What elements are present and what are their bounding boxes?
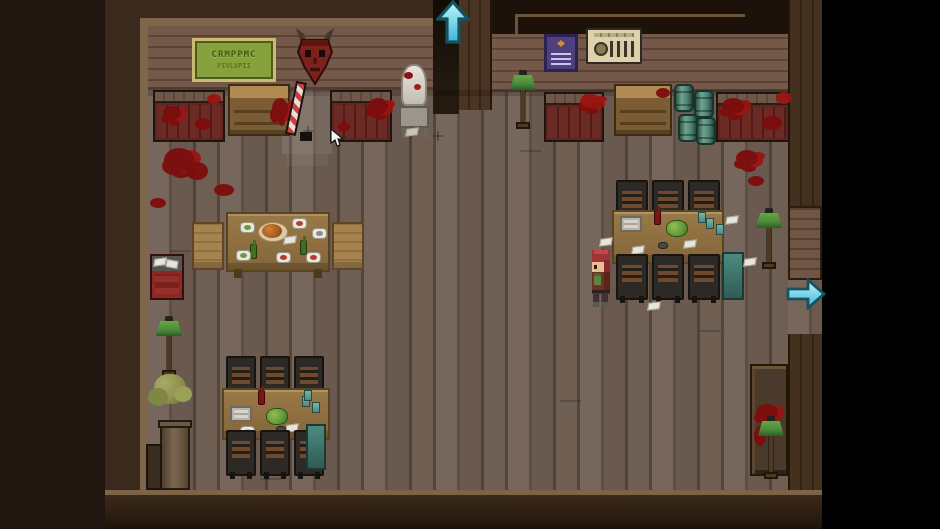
plant-pot bbox=[160, 426, 190, 490]
poster-text-rows bbox=[551, 50, 571, 65]
lamp-base bbox=[764, 472, 778, 479]
metal-tray bbox=[230, 406, 252, 422]
blood-stain bbox=[186, 162, 208, 180]
blood-stain bbox=[404, 72, 413, 79]
dark-chair bbox=[688, 254, 720, 300]
sign-text-line1: CRMPPMC bbox=[212, 50, 257, 60]
chair-slats bbox=[300, 367, 318, 384]
dark-chair bbox=[616, 254, 648, 300]
lamp-shade bbox=[756, 213, 782, 228]
blood-stain bbox=[580, 94, 600, 108]
wall-cabinet bbox=[614, 84, 672, 136]
sign-text-line2: PIVLVPII bbox=[217, 62, 251, 70]
bloody-bench bbox=[544, 92, 604, 142]
lamp-pole bbox=[767, 228, 771, 262]
cabbage bbox=[266, 408, 288, 425]
plate bbox=[312, 228, 327, 239]
dark-chair bbox=[226, 430, 256, 476]
table-leg bbox=[314, 269, 322, 278]
teal-cup bbox=[698, 212, 706, 223]
wine-bottle bbox=[250, 244, 257, 259]
teal-cup bbox=[716, 224, 724, 235]
panel-buttons bbox=[594, 33, 634, 37]
paper-scrap bbox=[683, 239, 697, 249]
teal-barrel bbox=[694, 90, 714, 118]
metal-tray bbox=[620, 216, 642, 232]
blood-stain bbox=[368, 98, 388, 114]
plank-joint bbox=[560, 400, 581, 402]
blood-stain bbox=[722, 98, 744, 114]
blood-stain bbox=[776, 92, 792, 104]
teal-barrel bbox=[674, 84, 694, 112]
blood-stain bbox=[163, 106, 181, 120]
floor-lamp bbox=[756, 208, 782, 269]
teal-cup bbox=[304, 390, 312, 401]
blood-stain bbox=[762, 116, 782, 130]
panel-slots bbox=[610, 41, 634, 57]
chair-slats bbox=[658, 265, 678, 282]
lamp-shade bbox=[510, 75, 536, 90]
lamp-base bbox=[516, 122, 530, 129]
bloody-bench bbox=[153, 90, 225, 142]
dark-chair bbox=[260, 430, 290, 476]
staff-tip bbox=[300, 132, 312, 141]
bloody-bench bbox=[716, 92, 790, 142]
dark-chair bbox=[652, 254, 684, 300]
plant-foliage bbox=[174, 386, 192, 402]
blood-stain bbox=[195, 118, 211, 130]
cabbage bbox=[666, 220, 688, 237]
chair-legs bbox=[230, 472, 252, 479]
letterbox-left bbox=[0, 0, 105, 529]
red-bottle bbox=[654, 210, 661, 225]
dining-table bbox=[226, 212, 330, 272]
floor-lamp bbox=[758, 416, 784, 479]
chair-slats bbox=[266, 441, 284, 458]
blood-stain bbox=[748, 176, 764, 186]
chair-slats bbox=[266, 367, 284, 384]
plate bbox=[236, 250, 251, 261]
chair-slats bbox=[694, 265, 714, 282]
chair-slats bbox=[694, 191, 714, 208]
room-frame-left bbox=[140, 18, 148, 490]
red-bottle bbox=[258, 390, 265, 405]
paper-scrap bbox=[283, 235, 297, 245]
wall-right-alcove bbox=[788, 206, 822, 280]
cabinet-shelf bbox=[234, 122, 284, 125]
game-viewport: CRMPPMC PIVLVPII bbox=[0, 0, 940, 529]
floor-mark bbox=[433, 131, 443, 141]
lamp-cap bbox=[767, 416, 775, 421]
panel-dial bbox=[594, 42, 608, 56]
bench-seat bbox=[548, 107, 600, 138]
blood-stain bbox=[656, 88, 670, 98]
wall-cabinet bbox=[228, 84, 290, 136]
cabinet-shelf bbox=[620, 110, 666, 113]
table-leg bbox=[234, 269, 242, 278]
floor-lamp bbox=[510, 70, 536, 129]
purple-poster bbox=[544, 34, 578, 72]
plate bbox=[276, 252, 291, 263]
blood-stain bbox=[272, 98, 288, 120]
roast-meat bbox=[262, 224, 282, 238]
outer-wall-bottom bbox=[105, 490, 822, 529]
teal-bin bbox=[722, 252, 744, 300]
plant-foliage bbox=[148, 388, 168, 406]
teal-barrel bbox=[696, 117, 716, 145]
lamp-cap bbox=[165, 316, 173, 321]
teal-cup bbox=[706, 218, 714, 229]
floor-lamp bbox=[156, 316, 182, 377]
plank-joint bbox=[520, 150, 541, 152]
letterbox-right bbox=[822, 0, 940, 529]
blood-stain bbox=[414, 84, 421, 90]
plank-joint bbox=[170, 250, 191, 252]
barrel-group bbox=[674, 84, 718, 146]
plate bbox=[306, 252, 321, 263]
beige-control-panel bbox=[586, 28, 642, 64]
lamp-shade bbox=[156, 321, 182, 336]
statue-stand bbox=[399, 106, 429, 128]
exit-right-arrow-icon[interactable] bbox=[786, 278, 826, 310]
mouse-cursor-icon bbox=[330, 128, 344, 148]
side-chair bbox=[332, 222, 364, 270]
blood-stain bbox=[150, 198, 166, 208]
dark-bowl bbox=[658, 242, 668, 249]
red-crate bbox=[150, 254, 184, 300]
crate-body-slats bbox=[155, 274, 179, 294]
chair-slats bbox=[622, 191, 642, 208]
lamp-pole bbox=[167, 336, 171, 370]
chair-slats bbox=[232, 367, 250, 384]
chair-legs bbox=[692, 296, 716, 303]
plate bbox=[292, 218, 307, 229]
plate bbox=[240, 222, 255, 233]
demon-mask-icon bbox=[288, 22, 342, 88]
poster-emblem bbox=[557, 40, 565, 47]
lamp-cap bbox=[519, 70, 527, 75]
player-character bbox=[586, 248, 616, 308]
lamp-pole bbox=[769, 436, 773, 472]
lamp-shade bbox=[758, 421, 784, 436]
teal-cup bbox=[312, 402, 320, 413]
opening-frame-h bbox=[515, 14, 745, 17]
teal-barrel bbox=[678, 114, 698, 142]
chair-legs bbox=[298, 472, 320, 479]
blood-stain bbox=[207, 94, 221, 104]
stand-leg bbox=[424, 128, 428, 138]
side-chair bbox=[192, 222, 224, 270]
chair-slats bbox=[232, 441, 250, 458]
lamp-cap bbox=[765, 208, 773, 213]
teal-bin bbox=[306, 424, 326, 470]
opening-frame-v bbox=[515, 14, 518, 34]
lamp-pole bbox=[521, 90, 525, 122]
chair-legs bbox=[264, 472, 286, 479]
light-patch-fade bbox=[286, 154, 328, 166]
exit-up-arrow-icon[interactable] bbox=[436, 0, 470, 44]
green-wall-sign: CRMPPMC PIVLVPII bbox=[192, 38, 276, 82]
corner-stool bbox=[146, 444, 162, 490]
chair-legs bbox=[620, 296, 644, 303]
blood-stain bbox=[214, 184, 234, 196]
cabinet-shelf bbox=[620, 122, 666, 125]
chair-slats bbox=[622, 265, 642, 282]
chair-slats bbox=[658, 191, 678, 208]
blood-stain bbox=[736, 150, 758, 166]
plank-joint bbox=[700, 330, 721, 332]
lamp-base bbox=[762, 262, 776, 269]
